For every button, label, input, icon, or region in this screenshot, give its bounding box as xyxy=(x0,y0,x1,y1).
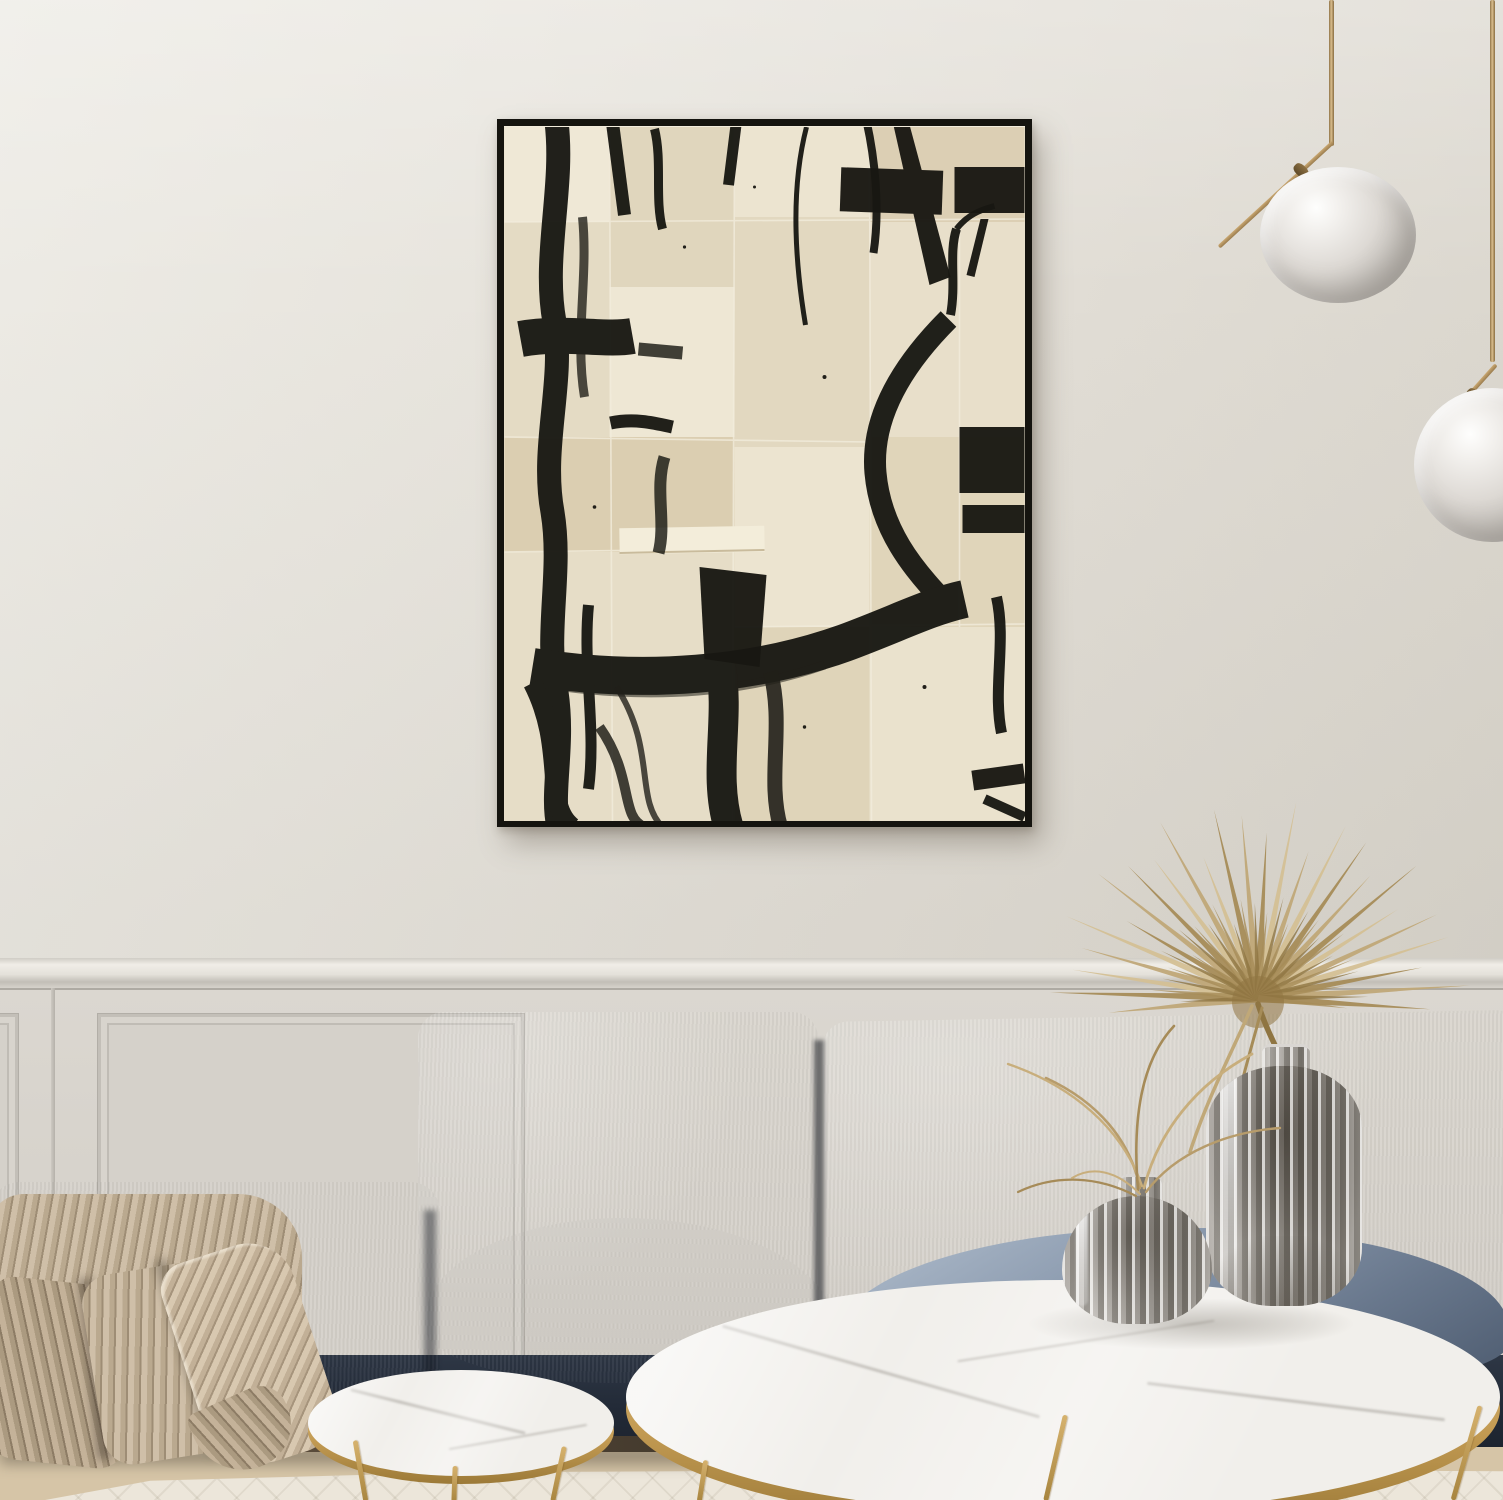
abstract-artwork-frame xyxy=(497,119,1032,827)
pendant-left-globe xyxy=(1260,167,1416,303)
living-room-scene xyxy=(0,0,1503,1500)
dried-grass-wisps xyxy=(980,1020,1410,1350)
abstract-ink-painting xyxy=(504,127,1025,821)
pendant-left-rod-vertical xyxy=(1329,0,1334,146)
pendant-right-rod-vertical xyxy=(1490,0,1495,362)
abstract-artwork-canvas xyxy=(504,126,1025,821)
small-table-top xyxy=(308,1370,614,1476)
